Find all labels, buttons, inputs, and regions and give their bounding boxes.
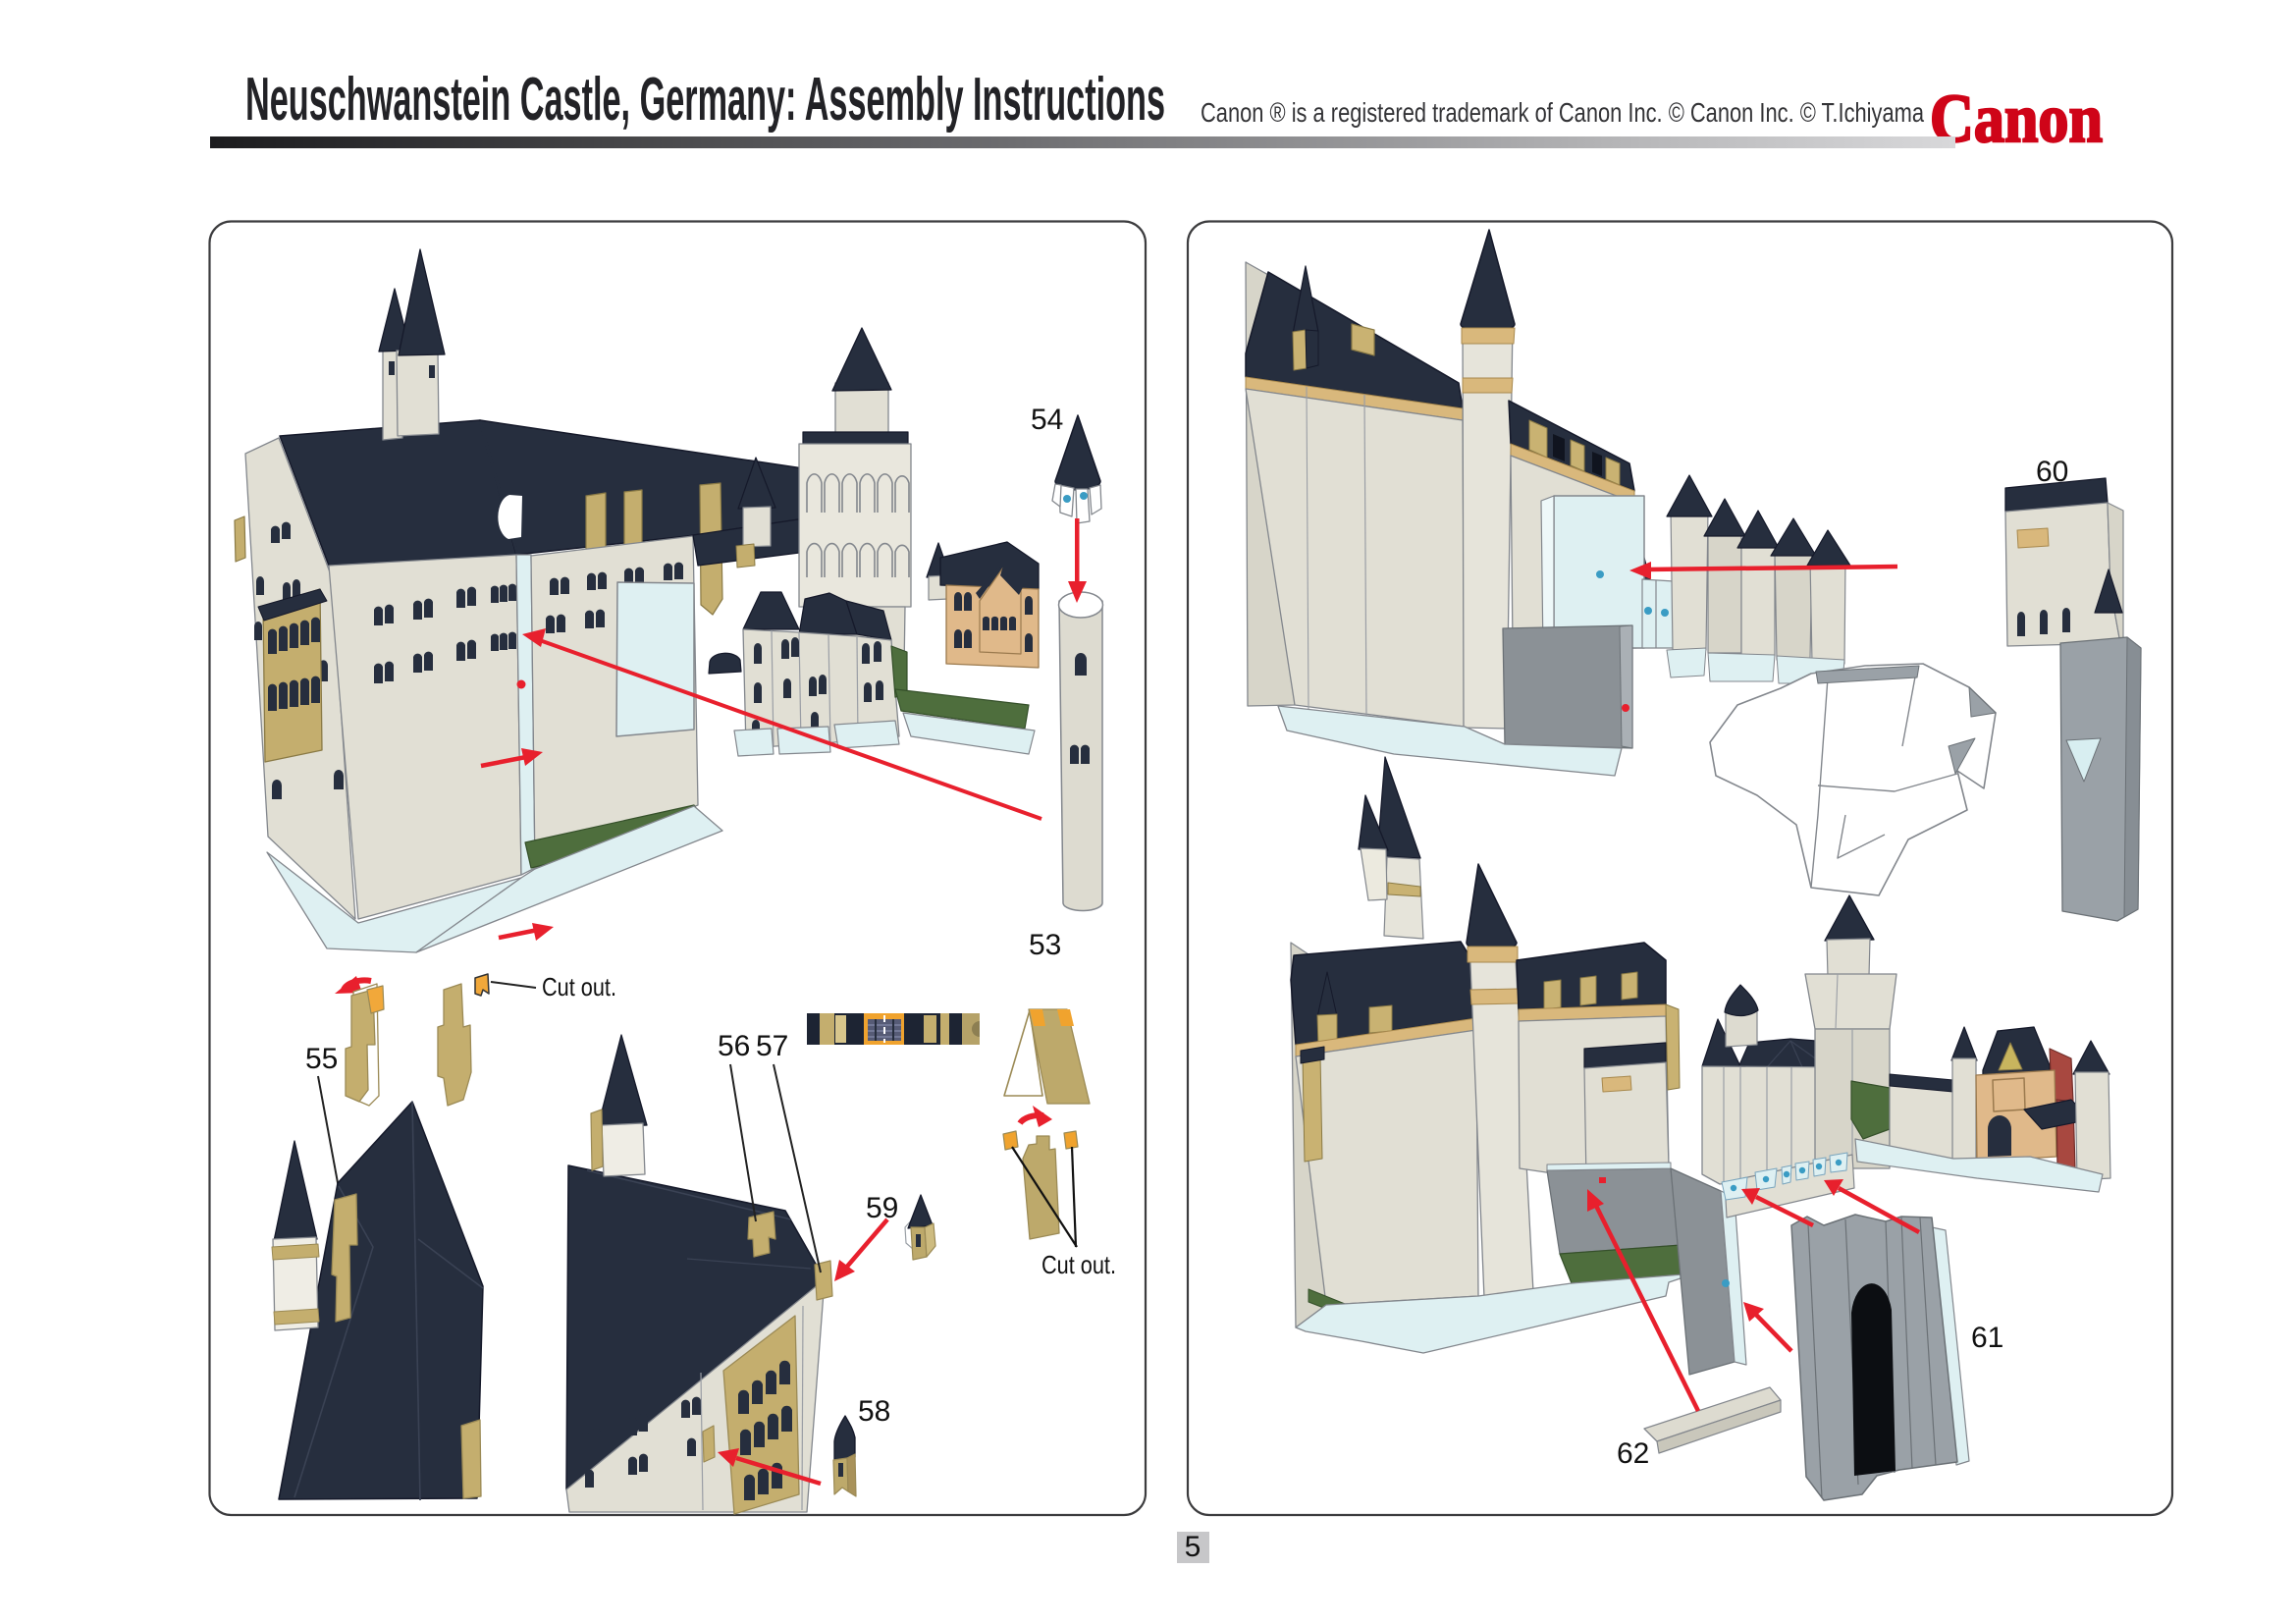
svg-text:61: 61 — [1971, 1322, 2003, 1354]
svg-text:57: 57 — [756, 1030, 788, 1062]
svg-text:53: 53 — [1029, 929, 1061, 961]
svg-text:56: 56 — [718, 1030, 750, 1062]
svg-text:62: 62 — [1617, 1437, 1649, 1470]
svg-text:Canon: Canon — [1930, 81, 2103, 157]
svg-text:54: 54 — [1031, 404, 1063, 436]
svg-text:Canon ® is a registered tradem: Canon ® is a registered trademark of Can… — [1201, 97, 1924, 128]
svg-text:Neuschwanstein Castle, Germany: Neuschwanstein Castle, Germany: Assembly… — [245, 66, 1165, 134]
svg-text:58: 58 — [858, 1395, 890, 1428]
svg-text:55: 55 — [305, 1043, 338, 1075]
svg-text:5: 5 — [1185, 1531, 1201, 1563]
svg-text:59: 59 — [866, 1192, 898, 1224]
svg-text:Cut out.: Cut out. — [542, 972, 616, 1001]
svg-text:Cut out.: Cut out. — [1041, 1250, 1116, 1279]
svg-text:60: 60 — [2036, 456, 2068, 488]
